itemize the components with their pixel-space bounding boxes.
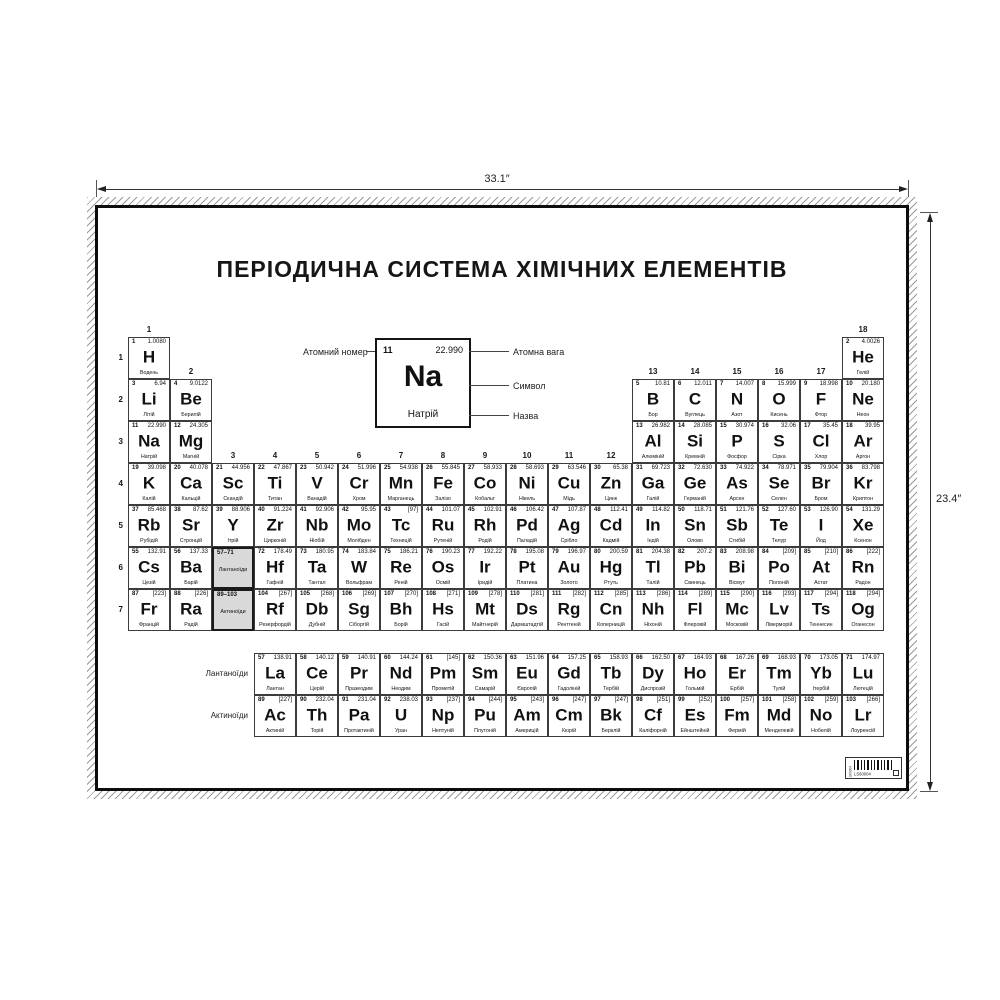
atomic-mass: 20.180	[862, 381, 880, 388]
element-cell-Cs: 55132.91CsЦезій	[128, 547, 170, 589]
element-cell-F: 918.998FФтор	[800, 379, 842, 421]
element-symbol: Rh	[474, 516, 497, 536]
element-symbol: As	[726, 474, 748, 494]
element-symbol: Cf	[644, 706, 662, 726]
element-symbol: Au	[558, 558, 581, 578]
element-symbol: Pd	[516, 516, 538, 536]
element-cell-Te: 52127.60TeТелур	[758, 505, 800, 547]
element-cell-Lr: 103[266]LrЛоуренсій	[842, 695, 884, 737]
atomic-number: 20	[174, 465, 181, 472]
element-symbol: Kr	[854, 474, 873, 494]
element-symbol: Be	[180, 390, 202, 410]
element-name: Паладій	[509, 538, 544, 543]
element-name: Алюміній	[635, 454, 670, 459]
element-symbol: Cr	[350, 474, 369, 494]
element-cell-Lv: 116[293]LvЛіверморій	[758, 589, 800, 631]
atomic-mass: 207.2	[697, 549, 712, 556]
atomic-mass: 12.011	[694, 381, 712, 388]
group-header-8: 8	[422, 451, 464, 461]
atomic-mass: 74.922	[736, 465, 754, 472]
element-symbol: Xe	[853, 516, 874, 536]
element-cell-Bk: 97[247]BkБерклій	[590, 695, 632, 737]
atomic-mass: [97]	[408, 507, 418, 514]
atomic-mass: 183.84	[358, 549, 376, 556]
element-name: Неон	[845, 412, 880, 417]
element-symbol: Hs	[432, 600, 454, 620]
atomic-number: 14	[678, 423, 685, 430]
element-cell-Ce: 58140.12CeЦерій	[296, 653, 338, 695]
element-symbol: Pr	[350, 664, 368, 684]
element-symbol: F	[816, 390, 826, 410]
element-name: Платина	[509, 580, 544, 585]
element-name: Плутоній	[467, 728, 502, 733]
element-name: Титан	[257, 496, 292, 501]
atomic-number: 72	[258, 549, 265, 556]
atomic-number: 53	[804, 507, 811, 514]
element-symbol: K	[143, 474, 155, 494]
element-cell-Pm: 61[145]PmПрометій	[422, 653, 464, 695]
element-symbol: Ts	[812, 600, 831, 620]
atomic-number: 8	[762, 381, 765, 388]
atomic-number: 58	[300, 655, 307, 662]
element-name: Натрій	[131, 454, 166, 459]
element-name: Резерфордій	[257, 622, 292, 627]
element-symbol: Te	[770, 516, 789, 536]
atomic-mass: [209]	[783, 549, 796, 556]
element-name: Празеодим	[341, 686, 376, 691]
height-dim-arrow-top	[927, 213, 933, 222]
element-symbol: Yb	[810, 664, 832, 684]
element-cell-Rb: 3785.468RbРубідій	[128, 505, 170, 547]
atomic-mass: 58.933	[484, 465, 502, 472]
atomic-mass: [258]	[783, 697, 796, 704]
atomic-number: 68	[720, 655, 727, 662]
element-name: Цинк	[593, 496, 628, 501]
atomic-mass: 151.96	[526, 655, 544, 662]
atomic-number: 43	[384, 507, 391, 514]
element-cell-Mo: 4295.95MoМолібден	[338, 505, 380, 547]
atomic-number: 39	[216, 507, 223, 514]
element-name: Реній	[383, 580, 418, 585]
element-cell-Tb: 65158.93TbТербій	[590, 653, 632, 695]
element-symbol: Pu	[474, 706, 496, 726]
element-symbol: Ca	[180, 474, 202, 494]
element-cell-Er: 68167.26ErЕрбій	[716, 653, 758, 695]
element-symbol: Ge	[684, 474, 707, 494]
element-cell-C: 612.011CВуглець	[674, 379, 716, 421]
element-symbol: Ho	[684, 664, 707, 684]
atomic-number: 107	[384, 591, 394, 598]
atomic-mass: 144.24	[400, 655, 418, 662]
atomic-number: 34	[762, 465, 769, 472]
atomic-number: 104	[258, 591, 268, 598]
element-cell-No: 102[259]NoНобелій	[800, 695, 842, 737]
element-cell-Sm: 62150.36SmСамарій	[464, 653, 506, 695]
element-name: Вольфрам	[341, 580, 376, 585]
atomic-mass: 58.693	[526, 465, 544, 472]
element-symbol: Ag	[558, 516, 581, 536]
element-cell-Nb: 4192.906NbНіобій	[296, 505, 338, 547]
element-name: Барій	[173, 580, 208, 585]
element-symbol: Og	[851, 600, 875, 620]
period-label-7: 7	[110, 589, 123, 631]
atomic-mass: 186.21	[400, 549, 418, 556]
element-symbol: Ir	[479, 558, 490, 578]
element-symbol: Re	[390, 558, 412, 578]
element-name: Водень	[131, 370, 166, 375]
atomic-mass: [290]	[741, 591, 754, 598]
element-cell-Cr: 2451.996CrХром	[338, 463, 380, 505]
atomic-mass: [294]	[867, 591, 880, 598]
atomic-mass: [269]	[363, 591, 376, 598]
atomic-number: 35	[804, 465, 811, 472]
element-cell-V: 2350.942VВанадій	[296, 463, 338, 505]
element-symbol: Sc	[223, 474, 244, 494]
atomic-mass: 69.723	[652, 465, 670, 472]
element-cell-Ac: 89[227]AcАктиній	[254, 695, 296, 737]
height-dim-extension-top	[920, 212, 938, 213]
element-cell-Hf: 72178.49HfГафній	[254, 547, 296, 589]
element-name: Гольмій	[677, 686, 712, 691]
atomic-mass: [282]	[573, 591, 586, 598]
atomic-number: 98	[636, 697, 643, 704]
element-cell-Cd: 48112.41CdКадмій	[590, 505, 632, 547]
atomic-number: 5	[636, 381, 639, 388]
element-name: Рубідій	[131, 538, 166, 543]
element-symbol: Zn	[601, 474, 622, 494]
atomic-mass: 95.95	[361, 507, 376, 514]
group-header-11: 11	[548, 451, 590, 461]
atomic-number: 10	[846, 381, 853, 388]
width-dim-arrow-right	[899, 186, 908, 192]
atomic-number: 15	[720, 423, 727, 430]
atomic-number: 52	[762, 507, 769, 514]
atomic-mass: 65.38	[613, 465, 628, 472]
element-name: Галій	[635, 496, 670, 501]
period-label-5: 5	[110, 505, 123, 547]
atomic-mass: 118.71	[694, 507, 712, 514]
element-cell-Pd: 46106.42PdПаладій	[506, 505, 548, 547]
atomic-mass: 55.845	[442, 465, 460, 472]
element-name: Талій	[635, 580, 670, 585]
element-cell-Sg: 106[269]SgСіборгій	[338, 589, 380, 631]
element-symbol: Cl	[813, 432, 830, 452]
atomic-mass: 50.942	[316, 465, 334, 472]
atomic-mass: 127.60	[778, 507, 796, 514]
atomic-mass: [285]	[615, 591, 628, 598]
atomic-mass: 44.956	[232, 465, 250, 472]
atomic-mass: 190.23	[442, 549, 460, 556]
element-name: Ербій	[719, 686, 754, 691]
element-cell-Lu: 71174.97LuЛютецій	[842, 653, 884, 695]
atomic-mass: [210]	[825, 549, 838, 556]
poster-title: ПЕРІОДИЧНА СИСТЕМА ХІМІЧНИХ ЕЛЕМЕНТІВ	[98, 256, 906, 283]
element-symbol: Hg	[600, 558, 623, 578]
element-symbol: Mc	[725, 600, 749, 620]
placeholder-range: 89–103	[217, 592, 237, 598]
group-header-18: 18	[842, 325, 884, 335]
atomic-mass: 178.49	[274, 549, 292, 556]
element-name: Цирконій	[257, 538, 292, 543]
atomic-mass: 132.91	[148, 549, 166, 556]
atomic-number: 12	[174, 423, 181, 430]
element-cell-Al: 1326.982AlАлюміній	[632, 421, 674, 463]
element-symbol: N	[731, 390, 743, 410]
element-symbol: Er	[728, 664, 746, 684]
element-name: Європій	[509, 686, 544, 691]
atomic-number: 83	[720, 549, 727, 556]
element-symbol: Tc	[392, 516, 411, 536]
element-symbol: Rf	[266, 600, 284, 620]
atomic-number: 3	[132, 381, 135, 388]
element-symbol: C	[689, 390, 701, 410]
element-cell-La: 57138.91LaЛантан	[254, 653, 296, 695]
atomic-number: 88	[174, 591, 181, 598]
atomic-mass: [271]	[447, 591, 460, 598]
atomic-number: 112	[594, 591, 604, 598]
barcode-number: LS60004	[854, 773, 871, 777]
element-name: Менделевій	[761, 728, 796, 733]
element-name: Технецій	[383, 538, 418, 543]
element-cell-Ar: 1839.95ArАргон	[842, 421, 884, 463]
placeholder-cell-89–103: 89–103Актиноїди	[212, 589, 254, 631]
atomic-number: 109	[468, 591, 478, 598]
atomic-number: 9	[804, 381, 807, 388]
atomic-mass: 157.25	[568, 655, 586, 662]
element-cell-Bi: 83208.98BiВісмут	[716, 547, 758, 589]
atomic-number: 79	[552, 549, 559, 556]
element-name: Хлор	[803, 454, 838, 459]
atomic-mass: [281]	[531, 591, 544, 598]
atomic-mass: 180.95	[316, 549, 334, 556]
element-symbol: At	[812, 558, 830, 578]
element-cell-Ra: 88[226]RaРадій	[170, 589, 212, 631]
element-name: Борій	[383, 622, 418, 627]
element-symbol: S	[773, 432, 784, 452]
element-cell-Os: 76190.23OsОсмій	[422, 547, 464, 589]
element-symbol: Hf	[266, 558, 284, 578]
element-name: Ніобій	[299, 538, 334, 543]
element-name: Гадоліній	[551, 686, 586, 691]
atomic-mass: 140.91	[358, 655, 376, 662]
periodic-table-poster: ПЕРІОДИЧНА СИСТЕМА ХІМІЧНИХ ЕЛЕМЕНТІВ Ат…	[95, 205, 909, 791]
product-image-canvas: { "dimensions": { "width_label": "33.1″"…	[0, 0, 1000, 1000]
atomic-mass: 51.996	[358, 465, 376, 472]
element-cell-Cn: 112[285]CnКоперницій	[590, 589, 632, 631]
element-name: Бор	[635, 412, 670, 417]
atomic-mass: 131.29	[862, 507, 880, 514]
element-cell-Ga: 3169.723GaГалій	[632, 463, 674, 505]
height-dimension-line	[930, 215, 931, 789]
element-cell-Zr: 4091.224ZrЦирконій	[254, 505, 296, 547]
group-header-17: 17	[800, 367, 842, 377]
atomic-number: 55	[132, 549, 139, 556]
element-name: Лантан	[257, 686, 292, 691]
actinides-row-label: Актиноїди	[153, 695, 248, 737]
element-symbol: Rg	[558, 600, 581, 620]
atomic-mass: 10.81	[655, 381, 670, 388]
atomic-number: 44	[426, 507, 433, 514]
element-name: Рентгеній	[551, 622, 586, 627]
element-cell-Mc: 115[290]McМосковій	[716, 589, 758, 631]
element-cell-Rn: 86[222]RnРадон	[842, 547, 884, 589]
element-cell-S: 1632.06SСірка	[758, 421, 800, 463]
element-symbol: Cu	[558, 474, 581, 494]
element-cell-Tm: 69168.93TmТулій	[758, 653, 800, 695]
element-cell-Li: 36.94LiЛітій	[128, 379, 170, 421]
element-symbol: U	[395, 706, 407, 726]
group-header-7: 7	[380, 451, 422, 461]
element-name: Теннесин	[803, 622, 838, 627]
group-header-6: 6	[338, 451, 380, 461]
element-cell-H: 11.0080HВодень	[128, 337, 170, 379]
poster-hatched-edge: ПЕРІОДИЧНА СИСТЕМА ХІМІЧНИХ ЕЛЕМЕНТІВ Ат…	[87, 197, 917, 799]
element-name: Сіборгій	[341, 622, 376, 627]
element-cell-Hs: 108[271]HsГасій	[422, 589, 464, 631]
atomic-mass: [247]	[615, 697, 628, 704]
atomic-mass: [293]	[783, 591, 796, 598]
atomic-mass: 208.98	[736, 549, 754, 556]
element-name: Оганесон	[845, 622, 880, 627]
width-dimension-line	[99, 189, 905, 190]
atomic-number: 85	[804, 549, 811, 556]
element-cell-Xe: 54131.29XeКсенон	[842, 505, 884, 547]
element-name: Тантал	[299, 580, 334, 585]
element-name: Цезій	[131, 580, 166, 585]
element-name: Азот	[719, 412, 754, 417]
atomic-mass: 138.91	[274, 655, 292, 662]
element-symbol: Fl	[687, 600, 702, 620]
width-dim-arrow-left	[97, 186, 106, 192]
element-cell-Bh: 107[270]BhБорій	[380, 589, 422, 631]
atomic-number: 48	[594, 507, 601, 514]
element-symbol: He	[852, 348, 874, 368]
atomic-number: 40	[258, 507, 265, 514]
atomic-mass: 39.098	[148, 465, 166, 472]
element-name: Фтор	[803, 412, 838, 417]
atomic-number: 82	[678, 549, 685, 556]
atomic-number: 80	[594, 549, 601, 556]
atomic-mass: 92.906	[316, 507, 334, 514]
atomic-mass: [267]	[279, 591, 292, 598]
atomic-mass: 232.04	[316, 697, 334, 704]
element-name: Індій	[635, 538, 670, 543]
atomic-number: 27	[468, 465, 475, 472]
element-symbol: La	[265, 664, 285, 684]
atomic-mass: 40.078	[190, 465, 208, 472]
element-symbol: Na	[138, 432, 160, 452]
atomic-number: 42	[342, 507, 349, 514]
element-symbol: Gd	[557, 664, 581, 684]
element-cell-Pt: 78195.08PtПлатина	[506, 547, 548, 589]
element-cell-Ag: 47107.87AgСрібло	[548, 505, 590, 547]
element-symbol: Mo	[347, 516, 372, 536]
atomic-number: 94	[468, 697, 475, 704]
atomic-number: 102	[804, 697, 814, 704]
element-cell-Ne: 1020.180NeНеон	[842, 379, 884, 421]
element-symbol: Fe	[433, 474, 453, 494]
element-name: Церій	[299, 686, 334, 691]
element-cell-Es: 99[252]EsЕйнштейній	[674, 695, 716, 737]
element-symbol: Am	[513, 706, 540, 726]
atomic-number: 30	[594, 465, 601, 472]
element-name: Кальцій	[173, 496, 208, 501]
atomic-mass: [226]	[195, 591, 208, 598]
atomic-mass: 4.0026	[862, 339, 880, 346]
element-cell-Ba: 56137.33BaБарій	[170, 547, 212, 589]
element-cell-Fl: 114[289]FlФлеровій	[674, 589, 716, 631]
group-header-13: 13	[632, 367, 674, 377]
element-name: Францій	[131, 622, 166, 627]
atomic-mass: 195.08	[526, 549, 544, 556]
group-header-3: 3	[212, 451, 254, 461]
element-cell-Th: 90232.04ThТорій	[296, 695, 338, 737]
element-cell-Sb: 51121.76SbСтибій	[716, 505, 758, 547]
atomic-mass: 107.87	[568, 507, 586, 514]
element-symbol: Tl	[645, 558, 660, 578]
element-cell-Mt: 109[278]MtМайтнерій	[464, 589, 506, 631]
atomic-number: 13	[636, 423, 643, 430]
atomic-number: 61	[426, 655, 433, 662]
element-symbol: Co	[474, 474, 497, 494]
element-name: Ітербій	[803, 686, 838, 691]
atomic-number: 29	[552, 465, 559, 472]
element-name: Берилій	[173, 412, 208, 417]
element-name: Радон	[845, 580, 880, 585]
atomic-mass: 9.0122	[190, 381, 208, 388]
element-name: Ітрій	[215, 538, 250, 543]
element-name: Тербій	[593, 686, 628, 691]
atomic-number: 71	[846, 655, 853, 662]
group-header-14: 14	[674, 367, 716, 377]
element-symbol: Ga	[642, 474, 665, 494]
atomic-mass: [247]	[573, 697, 586, 704]
atomic-mass: [222]	[867, 549, 880, 556]
element-name: Германій	[677, 496, 712, 501]
atomic-mass: 158.93	[610, 655, 628, 662]
element-symbol: Bk	[600, 706, 622, 726]
element-cell-Np: 93[237]NpНептуній	[422, 695, 464, 737]
atomic-number: 11	[132, 423, 138, 430]
element-cell-Am: 95[243]AmАмерицій	[506, 695, 548, 737]
atomic-number: 114	[678, 591, 688, 598]
element-name: Радій	[173, 622, 208, 627]
atomic-mass: 1.0080	[148, 339, 166, 346]
atomic-number: 37	[132, 507, 139, 514]
atomic-mass: 174.97	[862, 655, 880, 662]
atomic-mass: 87.62	[193, 507, 208, 514]
atomic-mass: 63.546	[568, 465, 586, 472]
atomic-number: 47	[552, 507, 559, 514]
atomic-mass: [259]	[825, 697, 838, 704]
element-name: Ейнштейній	[677, 728, 712, 733]
element-symbol: Ne	[852, 390, 874, 410]
atomic-mass: 164.93	[694, 655, 712, 662]
atomic-number: 116	[762, 591, 772, 598]
element-name: Ксенон	[845, 538, 880, 543]
atomic-mass: 173.05	[820, 655, 838, 662]
element-symbol: H	[143, 348, 155, 368]
element-name: Ліверморій	[761, 622, 796, 627]
placeholder-range: 57–71	[217, 550, 234, 556]
element-cell-Au: 79196.97AuЗолото	[548, 547, 590, 589]
atomic-number: 46	[510, 507, 517, 514]
atomic-mass: [289]	[699, 591, 712, 598]
element-name: Марганець	[383, 496, 418, 501]
atomic-number: 32	[678, 465, 685, 472]
element-cell-In: 49114.82InІндій	[632, 505, 674, 547]
element-name: Фермій	[719, 728, 754, 733]
